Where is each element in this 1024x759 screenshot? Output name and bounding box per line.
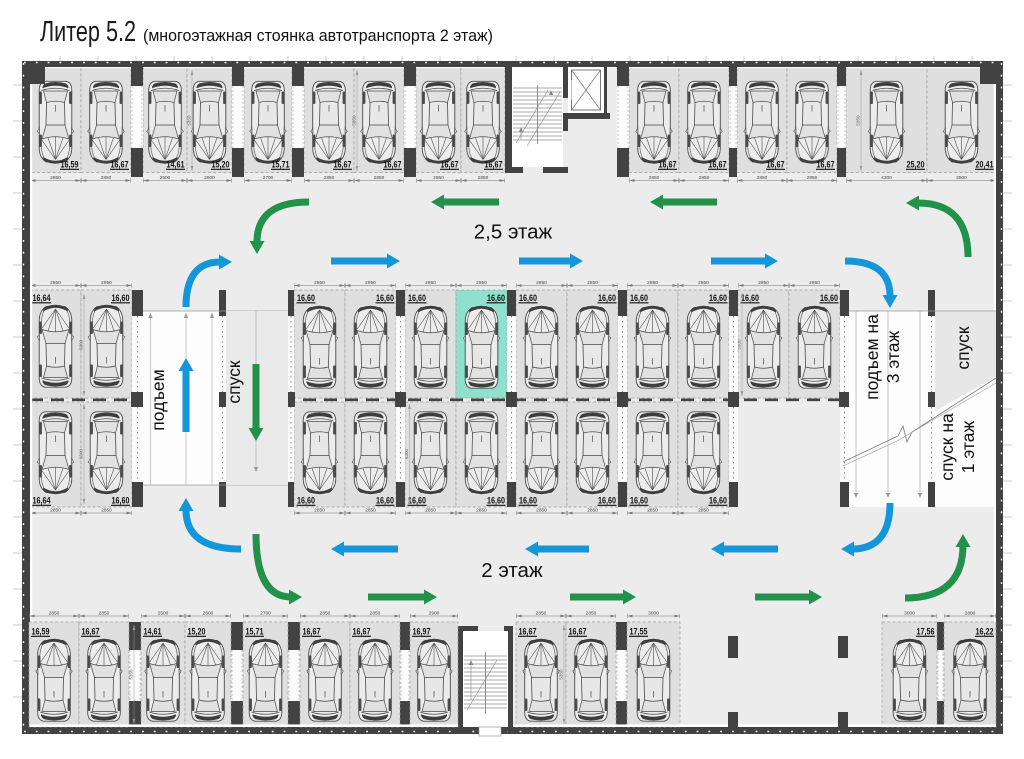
svg-text:16,59: 16,59	[32, 627, 50, 637]
svg-text:2600: 2600	[204, 175, 215, 181]
svg-text:16,67: 16,67	[767, 160, 785, 170]
svg-text:2850: 2850	[478, 175, 489, 181]
svg-text:16,59: 16,59	[61, 160, 79, 170]
svg-text:2850: 2850	[698, 507, 709, 513]
svg-text:2850: 2850	[647, 280, 658, 286]
svg-text:16,60: 16,60	[598, 293, 616, 303]
svg-text:15,20: 15,20	[212, 160, 230, 170]
svg-text:спуск: спуск	[224, 360, 244, 404]
svg-text:2850: 2850	[433, 175, 444, 181]
svg-text:15,71: 15,71	[246, 627, 264, 637]
svg-text:16,67: 16,67	[519, 627, 537, 637]
svg-text:16,60: 16,60	[709, 496, 727, 506]
svg-text:16,67: 16,67	[384, 160, 402, 170]
svg-text:2850: 2850	[536, 280, 547, 286]
svg-text:2800: 2800	[965, 610, 976, 616]
svg-text:2850: 2850	[425, 280, 436, 286]
svg-text:2850: 2850	[101, 175, 112, 181]
svg-text:16,67: 16,67	[111, 160, 129, 170]
svg-text:16,67: 16,67	[485, 160, 503, 170]
svg-text:(многоэтажная стоянка автотран: (многоэтажная стоянка автотранспорта 2 э…	[143, 27, 493, 45]
svg-text:подъем на: подъем на	[862, 314, 882, 400]
svg-text:2850: 2850	[370, 610, 381, 616]
svg-text:2850: 2850	[647, 507, 658, 513]
svg-text:16,60: 16,60	[376, 293, 394, 303]
svg-text:2850: 2850	[698, 280, 709, 286]
svg-text:16,60: 16,60	[112, 496, 130, 506]
svg-text:2850: 2850	[587, 280, 598, 286]
svg-text:2850: 2850	[425, 507, 436, 513]
svg-text:16,60: 16,60	[408, 293, 426, 303]
svg-text:15,20: 15,20	[188, 627, 206, 637]
svg-text:2850: 2850	[757, 175, 768, 181]
svg-text:2850: 2850	[809, 280, 820, 286]
svg-text:2850: 2850	[536, 610, 547, 616]
svg-text:16,60: 16,60	[598, 496, 616, 506]
svg-text:2850: 2850	[365, 507, 376, 513]
svg-text:16,60: 16,60	[709, 293, 727, 303]
svg-text:16,60: 16,60	[376, 496, 394, 506]
svg-text:2850: 2850	[320, 610, 331, 616]
svg-text:16,67: 16,67	[441, 160, 459, 170]
svg-text:2850: 2850	[101, 507, 112, 513]
svg-text:спуск: спуск	[953, 326, 973, 370]
svg-text:2600: 2600	[203, 610, 214, 616]
svg-text:2700: 2700	[263, 175, 274, 181]
svg-text:16,67: 16,67	[303, 627, 321, 637]
svg-text:2850: 2850	[50, 175, 61, 181]
svg-text:2850: 2850	[807, 175, 818, 181]
svg-text:3000: 3000	[904, 610, 915, 616]
svg-text:2850: 2850	[50, 507, 61, 513]
svg-text:17,56: 17,56	[917, 627, 935, 637]
svg-text:16,67: 16,67	[353, 627, 371, 637]
svg-text:25,20: 25,20	[907, 160, 925, 170]
svg-text:2850: 2850	[649, 175, 660, 181]
svg-text:16,67: 16,67	[82, 627, 100, 637]
svg-text:15,71: 15,71	[272, 160, 290, 170]
svg-text:16,60: 16,60	[519, 293, 537, 303]
svg-text:16,22: 16,22	[976, 627, 994, 637]
svg-text:14,61: 14,61	[167, 160, 185, 170]
svg-text:16,97: 16,97	[413, 627, 431, 637]
svg-text:16,67: 16,67	[659, 160, 677, 170]
svg-text:16,60: 16,60	[487, 496, 505, 506]
svg-text:2700: 2700	[260, 610, 271, 616]
svg-text:16,60: 16,60	[820, 293, 838, 303]
svg-text:подъем: подъем	[148, 369, 168, 430]
svg-text:16,64: 16,64	[33, 496, 52, 506]
svg-text:2500: 2500	[158, 610, 169, 616]
svg-text:16,60: 16,60	[297, 293, 315, 303]
svg-text:16,67: 16,67	[817, 160, 835, 170]
svg-text:16,60: 16,60	[630, 293, 648, 303]
svg-text:2 этаж: 2 этаж	[481, 559, 543, 582]
svg-text:16,64: 16,64	[33, 293, 52, 303]
svg-text:16,60: 16,60	[519, 496, 537, 506]
svg-text:2900: 2900	[429, 610, 440, 616]
svg-text:2850: 2850	[49, 610, 60, 616]
svg-text:спуск на: спуск на	[937, 413, 957, 481]
svg-text:2850: 2850	[699, 175, 710, 181]
svg-text:16,67: 16,67	[709, 160, 727, 170]
svg-text:4300: 4300	[881, 175, 892, 181]
svg-text:5350: 5350	[352, 115, 357, 126]
svg-text:1 этаж: 1 этаж	[958, 421, 978, 474]
svg-text:5350: 5350	[129, 669, 134, 680]
svg-text:5350: 5350	[559, 669, 564, 680]
svg-text:16,60: 16,60	[408, 496, 426, 506]
svg-text:17,55: 17,55	[630, 627, 648, 637]
svg-text:2850: 2850	[99, 610, 110, 616]
svg-text:5350: 5350	[187, 115, 192, 126]
svg-text:2850: 2850	[374, 175, 385, 181]
svg-text:2850: 2850	[476, 280, 487, 286]
svg-text:2850: 2850	[586, 610, 597, 616]
svg-text:2500: 2500	[160, 175, 171, 181]
svg-text:16,67: 16,67	[569, 627, 587, 637]
svg-text:3000: 3000	[648, 610, 659, 616]
svg-text:5300: 5300	[79, 339, 84, 350]
svg-text:16,60: 16,60	[741, 293, 759, 303]
svg-text:16,67: 16,67	[334, 160, 352, 170]
svg-text:Литер 5.2: Литер 5.2	[40, 16, 136, 48]
svg-text:16,60: 16,60	[297, 496, 315, 506]
svg-text:14,61: 14,61	[144, 627, 162, 637]
svg-text:2850: 2850	[314, 507, 325, 513]
svg-text:2850: 2850	[101, 280, 112, 286]
svg-text:2850: 2850	[536, 507, 547, 513]
svg-text:2850: 2850	[314, 280, 325, 286]
svg-text:5350: 5350	[856, 115, 861, 126]
svg-text:5300: 5300	[79, 448, 84, 459]
svg-text:16,60: 16,60	[487, 293, 505, 303]
svg-text:2850: 2850	[365, 280, 376, 286]
svg-text:16,60: 16,60	[630, 496, 648, 506]
svg-text:2,5 этаж: 2,5 этаж	[474, 221, 553, 244]
svg-text:2850: 2850	[324, 175, 335, 181]
svg-text:2850: 2850	[587, 507, 598, 513]
svg-text:20,41: 20,41	[976, 160, 994, 170]
svg-text:2850: 2850	[758, 280, 769, 286]
svg-text:3500: 3500	[956, 175, 967, 181]
svg-text:3 этаж: 3 этаж	[883, 331, 903, 384]
svg-text:16,60: 16,60	[112, 293, 130, 303]
svg-text:2850: 2850	[476, 507, 487, 513]
svg-text:2850: 2850	[50, 280, 61, 286]
